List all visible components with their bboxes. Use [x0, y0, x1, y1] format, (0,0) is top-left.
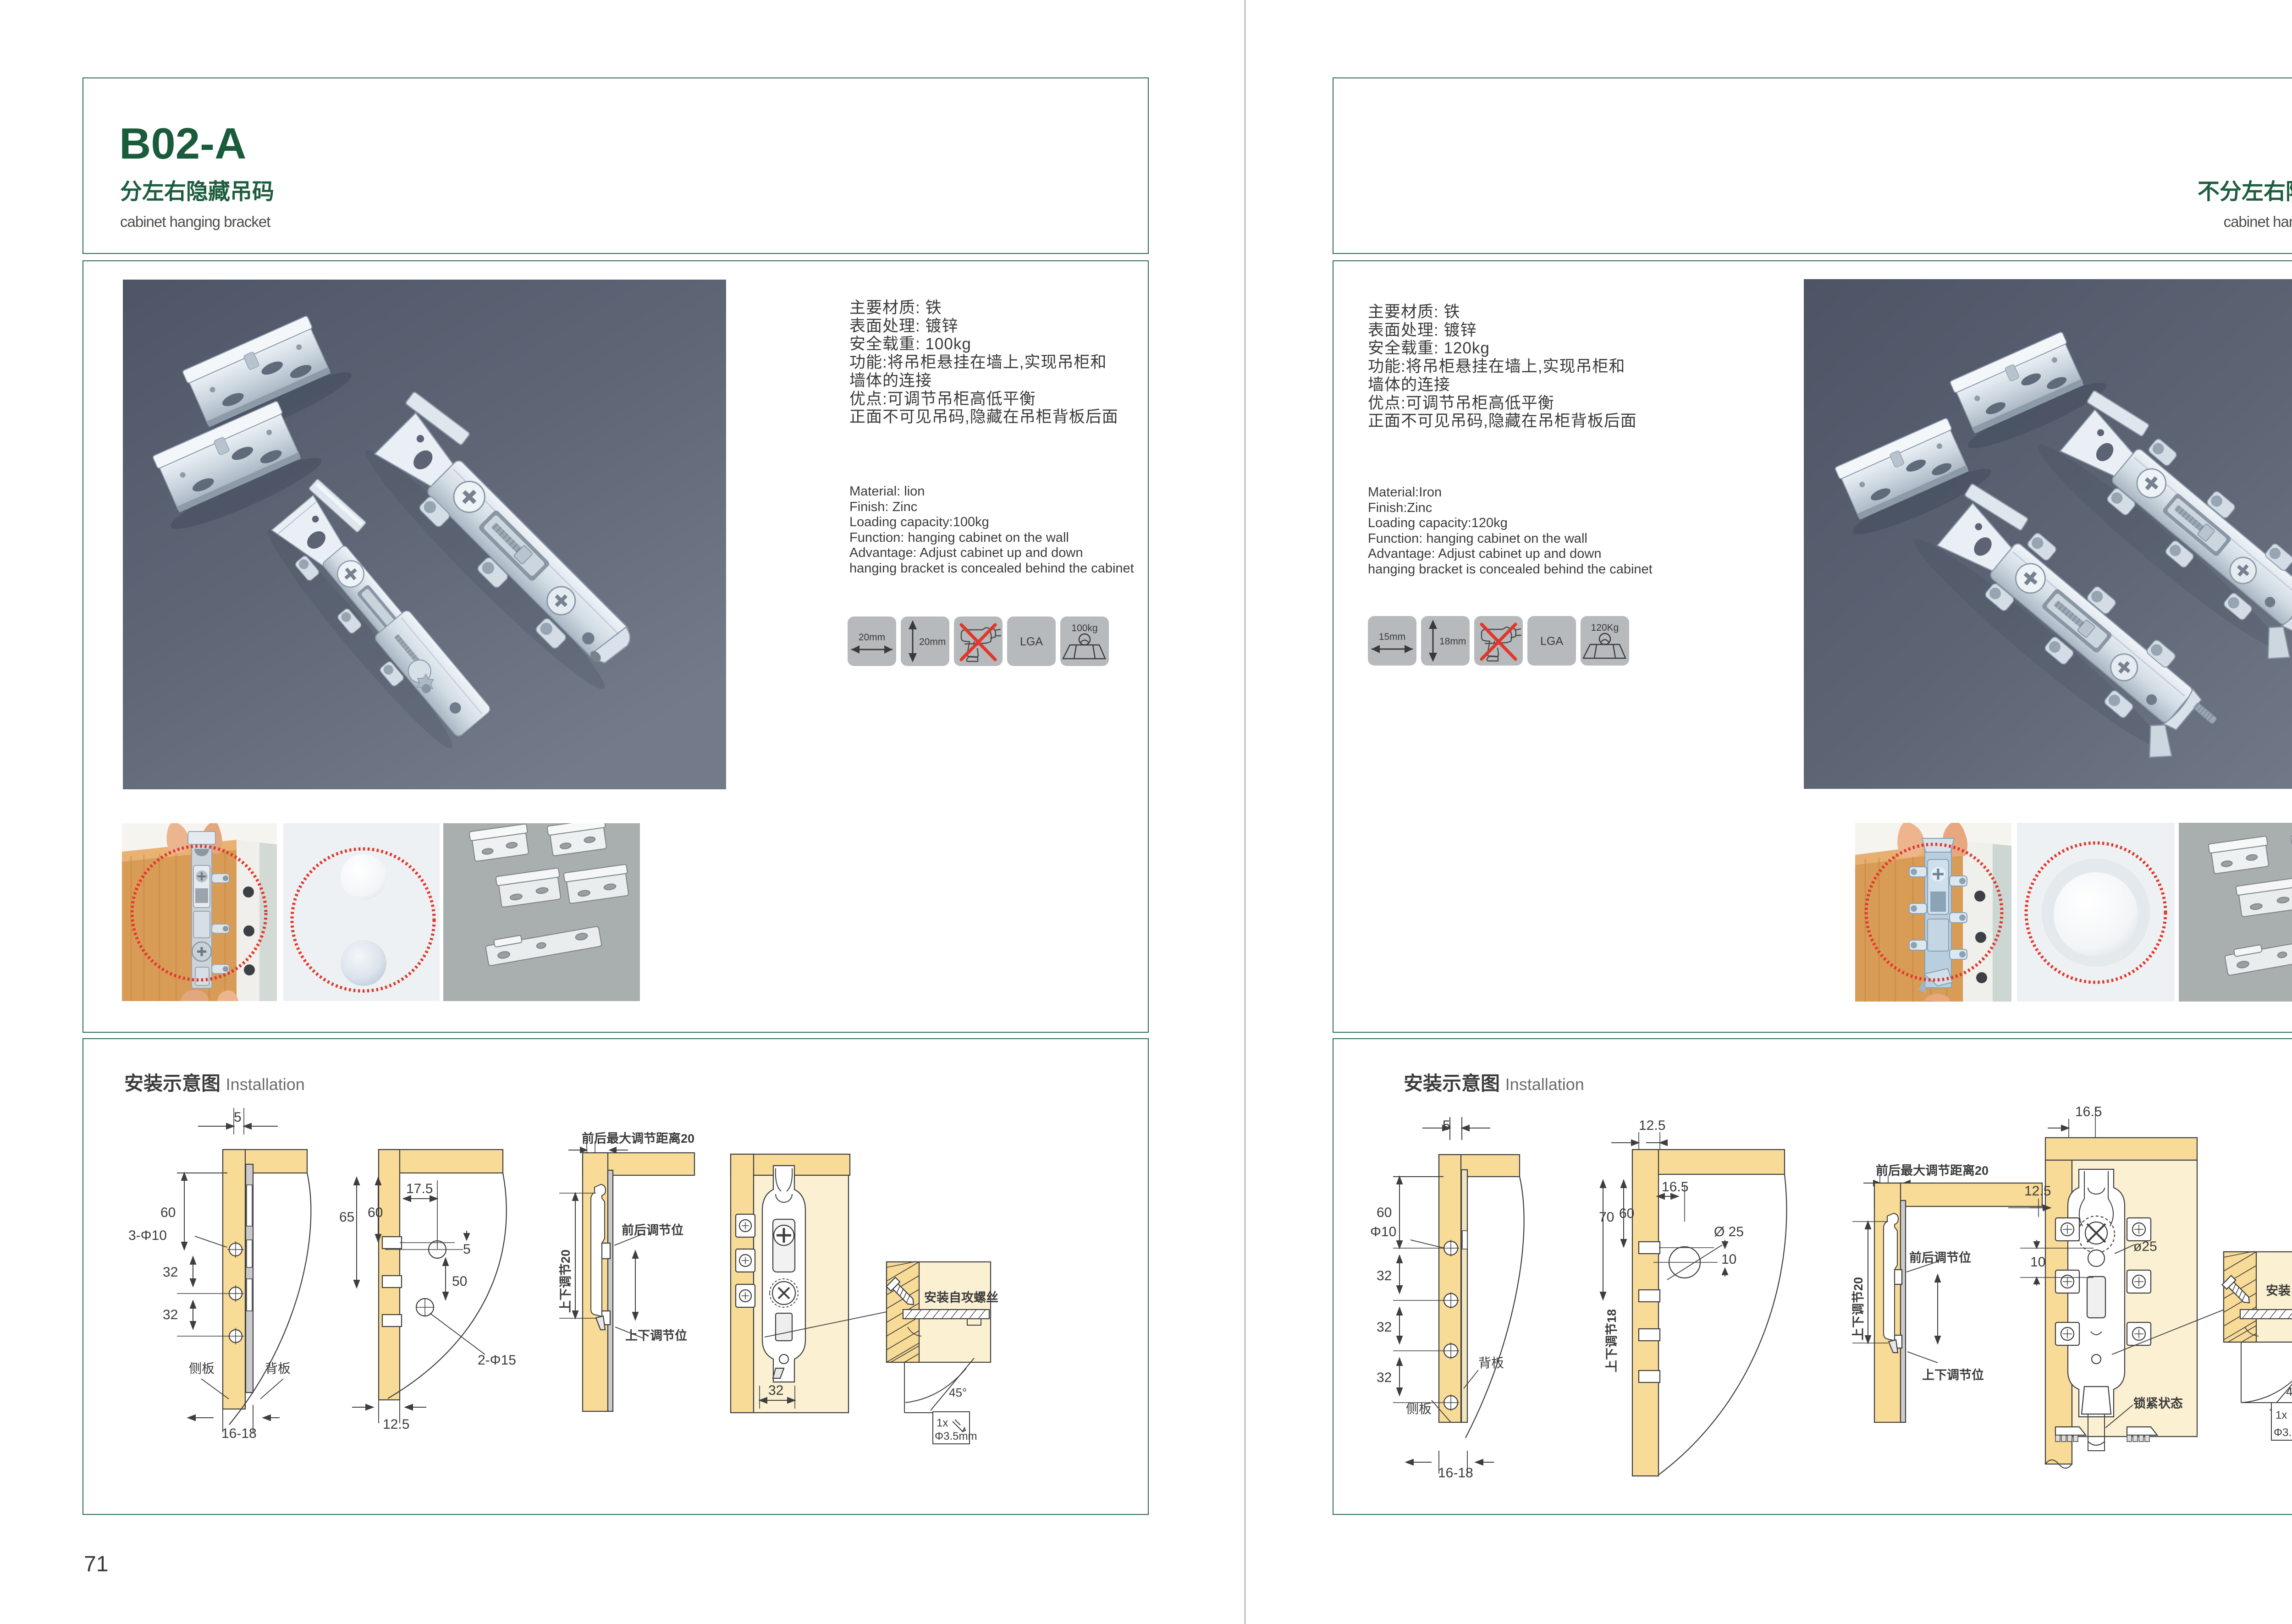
svg-text:17.5: 17.5: [406, 1181, 433, 1196]
svg-text:背板: 背板: [265, 1361, 291, 1376]
svg-text:侧板: 侧板: [189, 1361, 215, 1376]
svg-text:5: 5: [1443, 1118, 1450, 1133]
svg-text:Φ10: Φ10: [1370, 1224, 1396, 1239]
svg-text:12.5: 12.5: [1639, 1118, 1665, 1133]
svg-text:上下调节位: 上下调节位: [625, 1328, 687, 1343]
svg-text:前后最大调节距离20: 前后最大调节距离20: [582, 1131, 694, 1145]
svg-text:2-Φ15: 2-Φ15: [478, 1353, 516, 1368]
svg-text:安装自攻螺丝: 安装自攻螺丝: [924, 1290, 998, 1305]
svg-text:60: 60: [160, 1205, 176, 1220]
svg-text:16.5: 16.5: [2075, 1104, 2102, 1119]
svg-text:45°: 45°: [2286, 1385, 2292, 1398]
svg-text:Φ3.5mm: Φ3.5mm: [935, 1430, 977, 1442]
svg-text:18mm: 18mm: [1439, 636, 1466, 647]
svg-text:上下调节位: 上下调节位: [1922, 1368, 1984, 1382]
svg-text:Φ3.5mm: Φ3.5mm: [2274, 1426, 2292, 1439]
svg-text:45°: 45°: [949, 1386, 967, 1399]
svg-text:50: 50: [452, 1274, 467, 1289]
svg-text:15mm: 15mm: [1379, 632, 1405, 642]
svg-text:上下调节18: 上下调节18: [1605, 1309, 1619, 1372]
svg-text:ø25: ø25: [2133, 1239, 2157, 1254]
svg-text:背板: 背板: [1478, 1356, 1504, 1370]
svg-text:32: 32: [768, 1383, 783, 1398]
svg-text:32: 32: [163, 1265, 178, 1280]
svg-text:5: 5: [463, 1242, 471, 1257]
svg-text:10: 10: [2030, 1255, 2045, 1270]
svg-text:10: 10: [1721, 1252, 1736, 1267]
svg-text:上下调节20: 上下调节20: [559, 1250, 573, 1313]
svg-text:32: 32: [1377, 1370, 1392, 1385]
svg-text:60: 60: [1377, 1205, 1392, 1220]
svg-text:5: 5: [234, 1110, 242, 1125]
svg-text:60: 60: [368, 1205, 383, 1220]
svg-text:32: 32: [1377, 1268, 1392, 1283]
svg-text:16-18: 16-18: [221, 1426, 257, 1441]
svg-text:120Kg: 120Kg: [1591, 622, 1619, 633]
svg-text:32: 32: [1377, 1320, 1392, 1335]
svg-text:1x: 1x: [2275, 1409, 2287, 1421]
svg-text:12.5: 12.5: [2024, 1184, 2051, 1199]
svg-text:前后最大调节距离20: 前后最大调节距离20: [1876, 1163, 1989, 1178]
svg-text:16-18: 16-18: [1438, 1465, 1473, 1481]
svg-text:LGA: LGA: [1020, 635, 1043, 648]
svg-text:20mm: 20mm: [859, 632, 885, 643]
svg-text:65: 65: [339, 1210, 354, 1225]
svg-text:70: 70: [1599, 1210, 1614, 1225]
svg-text:上下调节20: 上下调节20: [1851, 1277, 1865, 1340]
svg-text:32: 32: [163, 1307, 178, 1322]
svg-text:3-Φ10: 3-Φ10: [128, 1228, 167, 1243]
svg-text:20mm: 20mm: [919, 637, 946, 647]
svg-text:Ø 25: Ø 25: [1714, 1224, 1744, 1239]
svg-text:前后调节位: 前后调节位: [622, 1223, 683, 1237]
svg-text:安装自攻螺丝: 安装自攻螺丝: [2266, 1283, 2292, 1298]
svg-text:12.5: 12.5: [383, 1417, 409, 1432]
svg-text:侧板: 侧板: [1406, 1402, 1432, 1416]
svg-text:100kg: 100kg: [1071, 623, 1097, 633]
svg-text:16.5: 16.5: [1662, 1179, 1688, 1195]
svg-text:LGA: LGA: [1540, 635, 1563, 648]
svg-text:锁紧状态: 锁紧状态: [2133, 1396, 2183, 1410]
svg-text:1x: 1x: [937, 1417, 948, 1429]
svg-text:60: 60: [1619, 1206, 1634, 1221]
svg-text:前后调节位: 前后调节位: [1909, 1250, 1971, 1265]
